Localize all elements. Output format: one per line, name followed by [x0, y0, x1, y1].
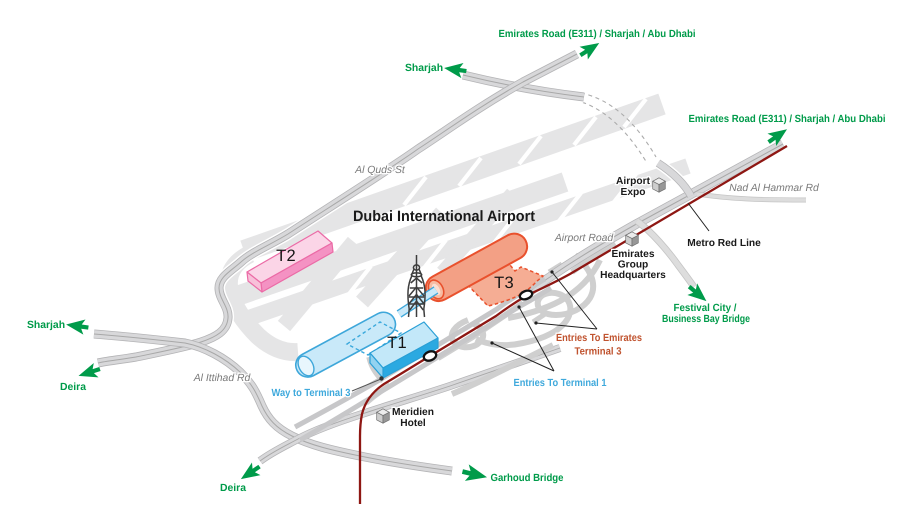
svg-text:Emirates Road (E311) / Sharjah: Emirates Road (E311) / Sharjah / Abu Dha… — [499, 29, 696, 40]
svg-text:Garhoud Bridge: Garhoud Bridge — [491, 473, 564, 484]
svg-text:Al Ittihad Rd: Al Ittihad Rd — [193, 373, 252, 384]
svg-text:Airport Road: Airport Road — [554, 233, 615, 244]
svg-text:Terminal 3: Terminal 3 — [575, 347, 622, 358]
svg-text:Dubai International Airport: Dubai International Airport — [353, 208, 535, 225]
svg-text:Nad Al Hammar Rd: Nad Al Hammar Rd — [729, 183, 820, 194]
svg-text:Group: Group — [618, 260, 649, 271]
svg-text:Emirates: Emirates — [611, 249, 654, 260]
svg-text:Sharjah: Sharjah — [405, 63, 443, 74]
svg-text:Way to Terminal 3: Way to Terminal 3 — [272, 388, 351, 399]
svg-text:Festival City /: Festival City / — [674, 303, 737, 314]
svg-text:Business Bay Bridge: Business Bay Bridge — [662, 314, 750, 325]
svg-text:Expo: Expo — [621, 187, 646, 198]
svg-text:T1: T1 — [387, 334, 407, 352]
svg-text:Metro Red Line: Metro Red Line — [687, 238, 761, 249]
svg-text:Meridien: Meridien — [392, 407, 434, 418]
svg-text:Deira: Deira — [220, 483, 246, 494]
svg-text:Hotel: Hotel — [400, 418, 426, 429]
svg-text:T2: T2 — [276, 247, 296, 265]
svg-text:Emirates Road (E311) / Sharjah: Emirates Road (E311) / Sharjah / Abu Dha… — [689, 114, 886, 125]
svg-text:Sharjah: Sharjah — [27, 320, 65, 331]
svg-text:Headquarters: Headquarters — [600, 270, 666, 281]
svg-text:Entries To Terminal 1: Entries To Terminal 1 — [514, 378, 607, 389]
svg-text:T3: T3 — [494, 274, 514, 292]
svg-text:Al Quds St: Al Quds St — [354, 165, 406, 176]
svg-text:Entries To Emirates: Entries To Emirates — [556, 333, 642, 344]
svg-text:Airport: Airport — [616, 176, 651, 187]
svg-text:Deira: Deira — [60, 382, 86, 393]
